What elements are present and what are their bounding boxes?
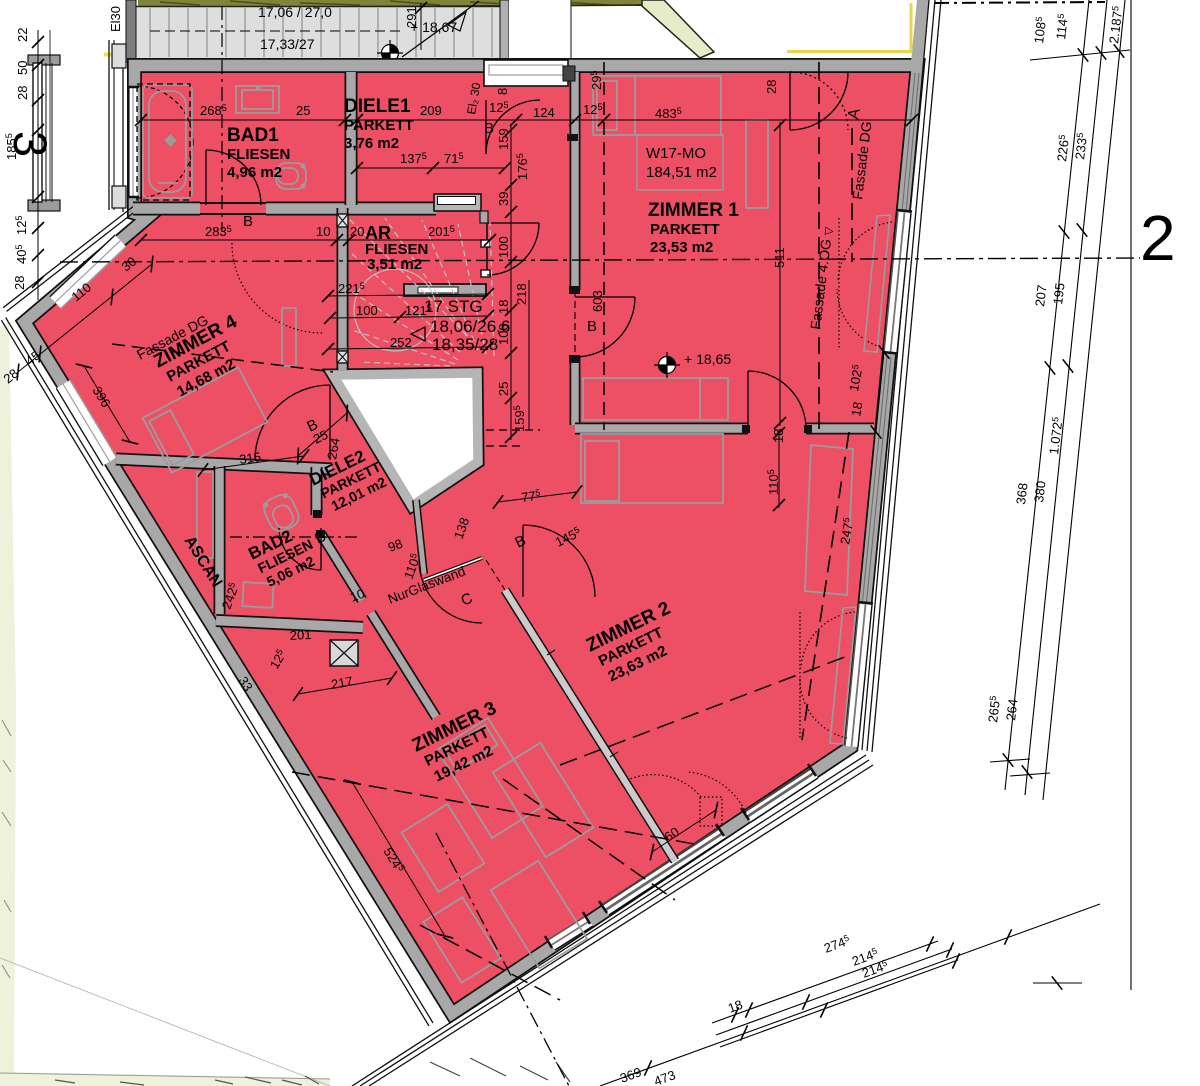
svg-text:3,76 m2: 3,76 m2 <box>344 135 399 152</box>
svg-text:218: 218 <box>514 283 529 305</box>
svg-text:FLIESEN: FLIESEN <box>227 146 290 163</box>
svg-text:100: 100 <box>496 323 511 345</box>
svg-text:28: 28 <box>764 80 779 94</box>
svg-text:195: 195 <box>1050 282 1068 305</box>
svg-text:22: 22 <box>15 28 30 42</box>
svg-text:380: 380 <box>1031 480 1049 503</box>
svg-text:315: 315 <box>238 449 262 467</box>
svg-text:W17-MO: W17-MO <box>646 145 706 162</box>
svg-text:DIELE1: DIELE1 <box>344 96 411 117</box>
svg-text:AR: AR <box>365 223 391 243</box>
svg-text:18: 18 <box>848 401 865 418</box>
svg-text:209: 209 <box>420 103 442 118</box>
svg-text:100: 100 <box>356 303 378 318</box>
svg-text:2: 2 <box>1140 202 1176 274</box>
svg-text:18: 18 <box>771 429 786 443</box>
svg-text:264: 264 <box>1003 698 1021 721</box>
svg-text:201: 201 <box>289 627 311 643</box>
svg-text:368: 368 <box>1013 482 1031 505</box>
svg-text:184,51 m2: 184,51 m2 <box>646 164 717 181</box>
svg-text:252: 252 <box>390 335 412 350</box>
svg-text:100: 100 <box>496 236 511 258</box>
svg-text:124: 124 <box>533 105 555 120</box>
svg-text:17,33/27: 17,33/27 <box>260 36 315 52</box>
svg-text:17 STG: 17 STG <box>424 297 483 316</box>
svg-text:511: 511 <box>772 247 787 268</box>
svg-text:PARKETT: PARKETT <box>344 117 414 134</box>
svg-text:28: 28 <box>12 276 27 290</box>
svg-text:PARKETT: PARKETT <box>650 221 720 238</box>
svg-text:20: 20 <box>350 224 364 239</box>
svg-text:28: 28 <box>15 86 30 100</box>
svg-text:603: 603 <box>590 290 605 312</box>
svg-text:25: 25 <box>296 103 310 118</box>
svg-text:10: 10 <box>316 224 330 239</box>
svg-text:207: 207 <box>1032 284 1050 307</box>
svg-text:ZIMMER 1: ZIMMER 1 <box>648 200 739 221</box>
svg-text:B: B <box>243 213 253 230</box>
svg-text:291: 291 <box>404 6 419 28</box>
svg-text:3,51 m2: 3,51 m2 <box>367 256 422 273</box>
svg-text:4,96 m2: 4,96 m2 <box>227 164 282 181</box>
svg-text:B: B <box>484 120 494 137</box>
svg-text:25: 25 <box>496 382 511 396</box>
svg-text:23,53 m2: 23,53 m2 <box>650 239 713 256</box>
svg-text:El30: El30 <box>108 6 123 32</box>
svg-text:17,06 / 27,0: 17,06 / 27,0 <box>258 4 332 20</box>
svg-text:50: 50 <box>15 61 30 75</box>
svg-text:18,35/28: 18,35/28 <box>432 335 498 354</box>
svg-text:+ 18,65: + 18,65 <box>684 351 731 367</box>
svg-text:39: 39 <box>496 192 511 206</box>
svg-text:8: 8 <box>495 88 510 95</box>
svg-text:18: 18 <box>496 300 511 314</box>
svg-text:B: B <box>587 318 597 335</box>
svg-text:159: 159 <box>496 128 511 150</box>
svg-text:BAD1: BAD1 <box>227 125 279 146</box>
